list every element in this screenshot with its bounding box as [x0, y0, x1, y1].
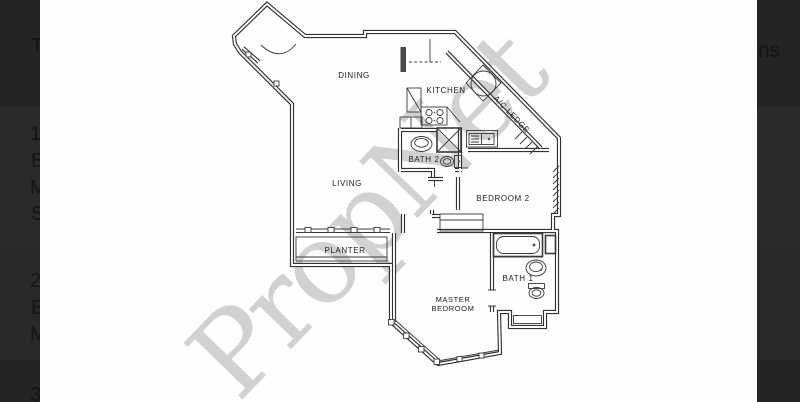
- clipped-text: B: [31, 151, 40, 171]
- label-kitchen: KITCHEN: [426, 86, 465, 95]
- label-planter: PLANTER: [324, 246, 365, 255]
- clipped-text: 2: [30, 271, 40, 291]
- clipped-text: B: [31, 298, 40, 318]
- ac-ledge-box: [514, 316, 542, 324]
- bath1-cabinet: [546, 236, 556, 254]
- column: [401, 47, 407, 72]
- page: PropNet: [0, 0, 800, 402]
- right-page-panel: ns: [757, 0, 800, 402]
- label-master-1: MASTER: [436, 295, 471, 304]
- bay-post: [457, 357, 462, 362]
- label-bedroom2: BEDROOM 2: [476, 194, 529, 203]
- bay-post: [479, 353, 484, 358]
- label-bath1: BATH 1: [502, 274, 533, 283]
- left-page-panel: T 1 B M S 2 B M 3: [0, 0, 40, 402]
- label-dining: DINING: [338, 71, 370, 80]
- label-bath2: BATH 2: [408, 155, 439, 164]
- clipped-text: 1: [30, 124, 40, 144]
- window-joint: [246, 52, 251, 57]
- clipped-text: M: [30, 324, 40, 344]
- clipped-text: 3: [30, 385, 40, 402]
- label-master-2: BEDROOM: [432, 304, 475, 313]
- bath1-toilet: [529, 288, 544, 299]
- clipped-text: S: [31, 204, 40, 224]
- label-living: LIVING: [332, 179, 362, 188]
- floor-plan-image: PropNet: [0, 0, 800, 402]
- clipped-text: ns: [758, 41, 780, 61]
- clipped-text: T: [31, 36, 40, 56]
- clipped-text: M: [30, 178, 40, 198]
- bay-post: [404, 333, 410, 339]
- panel-band: [757, 245, 800, 360]
- bay-post: [419, 347, 425, 353]
- panel-band: [757, 107, 800, 245]
- entry-door-arc: [261, 44, 296, 54]
- bay-post: [434, 359, 440, 365]
- window-joint: [274, 81, 279, 86]
- watermark-text: PropNet: [164, 5, 574, 402]
- bay-post: [389, 320, 395, 326]
- panel-band: [757, 360, 800, 402]
